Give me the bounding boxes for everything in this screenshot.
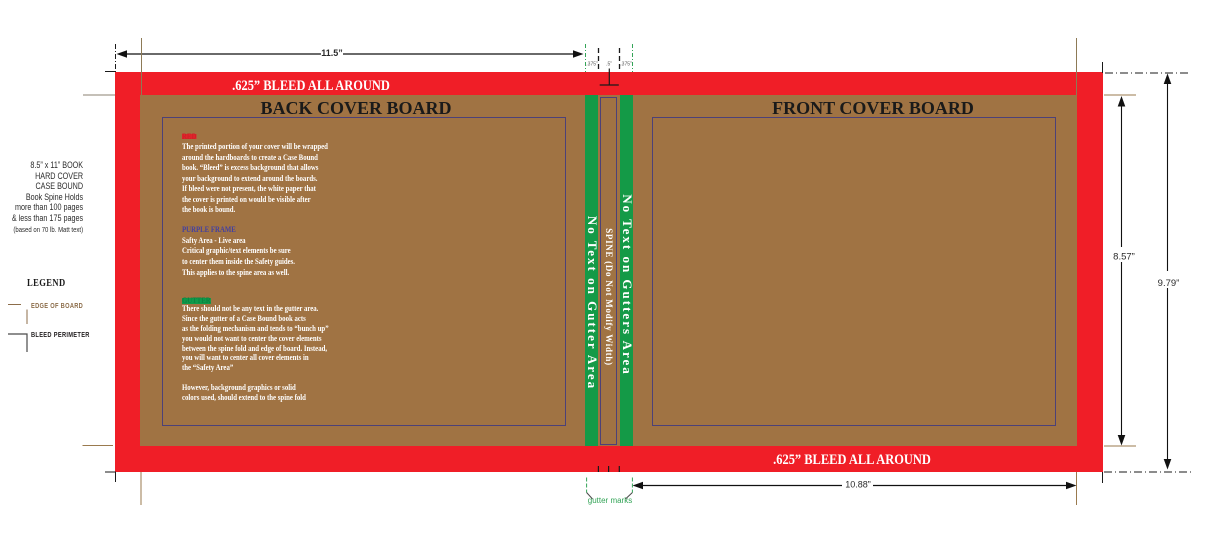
svg-text:8.57”: 8.57” <box>1113 252 1135 263</box>
svg-text:11.5”: 11.5” <box>321 48 343 58</box>
svg-text:10.88”: 10.88” <box>845 480 871 490</box>
svg-text:.375”: .375” <box>586 62 598 68</box>
svg-text:.375”: .375” <box>620 62 632 68</box>
svg-text:.5”: .5” <box>606 62 612 68</box>
svg-text:9.79”: 9.79” <box>1158 278 1180 289</box>
svg-text:gutter marks: gutter marks <box>588 496 632 505</box>
